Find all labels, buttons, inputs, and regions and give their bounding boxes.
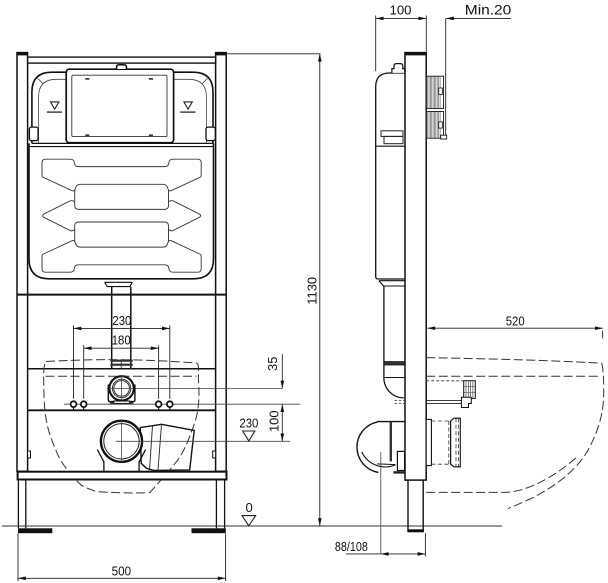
svg-text:500: 500 <box>112 564 132 579</box>
svg-text:0: 0 <box>245 500 252 515</box>
svg-text:230: 230 <box>112 313 131 328</box>
svg-text:100: 100 <box>266 410 281 432</box>
svg-text:100: 100 <box>390 3 412 18</box>
svg-text:180: 180 <box>112 333 131 348</box>
svg-text:Min.20: Min.20 <box>465 3 512 18</box>
svg-text:88/108: 88/108 <box>335 539 368 554</box>
svg-text:520: 520 <box>506 313 525 328</box>
svg-text:230: 230 <box>239 415 258 430</box>
svg-text:1130: 1130 <box>304 277 319 305</box>
svg-text:35: 35 <box>265 357 280 371</box>
